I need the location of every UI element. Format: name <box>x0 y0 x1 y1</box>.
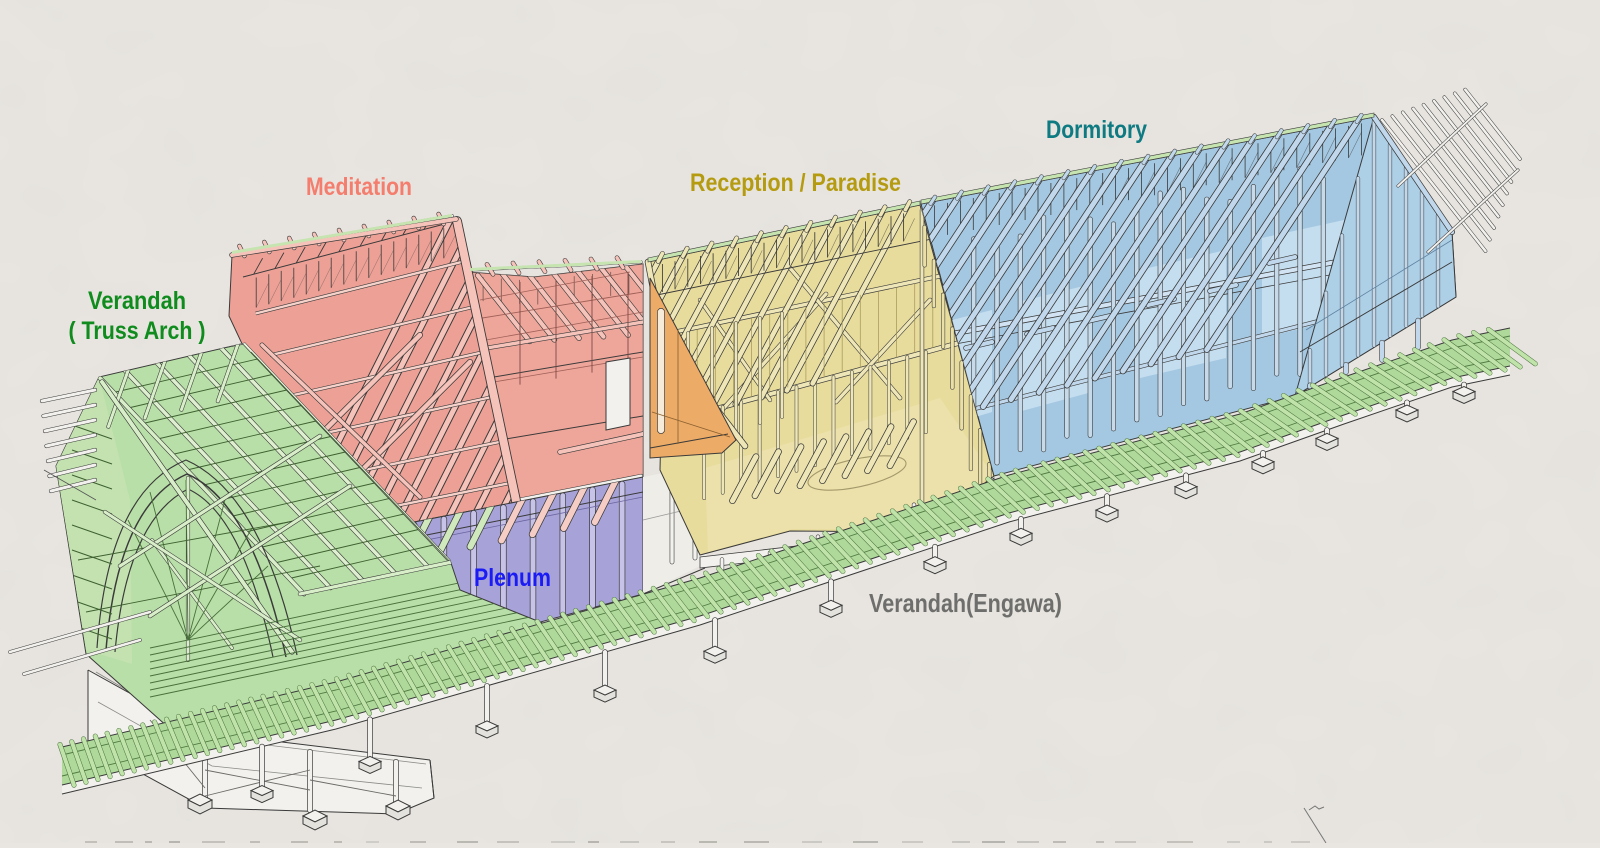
svg-text:Verandah: Verandah <box>88 287 186 315</box>
svg-text:Meditation: Meditation <box>306 173 412 201</box>
svg-text:Verandah(Engawa): Verandah(Engawa) <box>869 588 1062 618</box>
svg-text:Plenum: Plenum <box>474 564 551 592</box>
svg-text:Reception / Paradise: Reception / Paradise <box>690 169 901 197</box>
svg-text:( Truss Arch ): ( Truss Arch ) <box>69 317 206 345</box>
svg-text:Dormitory: Dormitory <box>1046 116 1147 144</box>
